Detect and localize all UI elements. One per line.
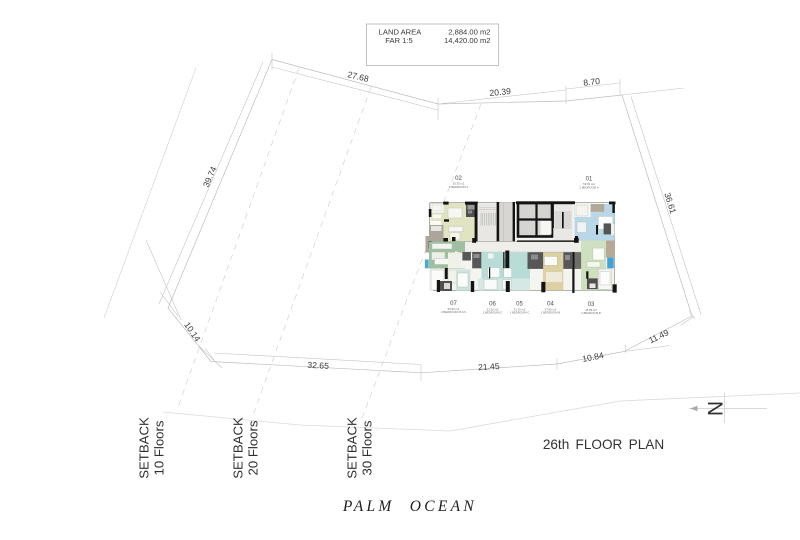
svg-text:21.45: 21.45 [478, 361, 500, 372]
svg-text:FAR 1:5: FAR 1:5 [385, 36, 412, 45]
svg-text:32.65: 32.65 [307, 360, 329, 371]
svg-text:1 BEDROOM B: 1 BEDROOM B [541, 311, 561, 315]
svg-text:36.61: 36.61 [662, 191, 678, 215]
svg-text:10 Floors: 10 Floors [152, 420, 167, 475]
svg-text:SETBACK: SETBACK [345, 417, 360, 479]
svg-text:30 Floors: 30 Floors [360, 420, 375, 475]
svg-text:2 BEDROOM PLUS: 2 BEDROOM PLUS [441, 310, 466, 314]
svg-text:2 BEDROOM 2: 2 BEDROOM 2 [449, 185, 469, 189]
svg-text:20.39: 20.39 [489, 86, 512, 98]
svg-text:27.68: 27.68 [347, 69, 370, 84]
svg-text:1 BEDROOM C: 1 BEDROOM C [483, 311, 503, 315]
svg-text:2 BEDROOM B: 2 BEDROOM B [581, 311, 601, 315]
svg-text:PALM OCEAN: PALM OCEAN [342, 498, 477, 515]
svg-text:SETBACK: SETBACK [137, 417, 152, 479]
svg-text:SETBACK: SETBACK [231, 417, 246, 479]
svg-text:11.49: 11.49 [647, 327, 670, 345]
svg-text:10.84: 10.84 [581, 350, 604, 364]
svg-text:14,420.00 m2: 14,420.00 m2 [444, 36, 490, 45]
svg-text:26th FLOOR PLAN: 26th FLOOR PLAN [543, 437, 664, 452]
svg-text:N: N [703, 401, 726, 416]
svg-text:20 Floors: 20 Floors [246, 420, 261, 475]
svg-text:8.70: 8.70 [583, 76, 601, 88]
svg-text:39.74: 39.74 [201, 165, 219, 189]
svg-text:10.14: 10.14 [182, 320, 203, 344]
svg-text:2 BEDROOM A: 2 BEDROOM A [579, 185, 598, 189]
svg-text:1 BEDROOM C: 1 BEDROOM C [510, 311, 530, 315]
